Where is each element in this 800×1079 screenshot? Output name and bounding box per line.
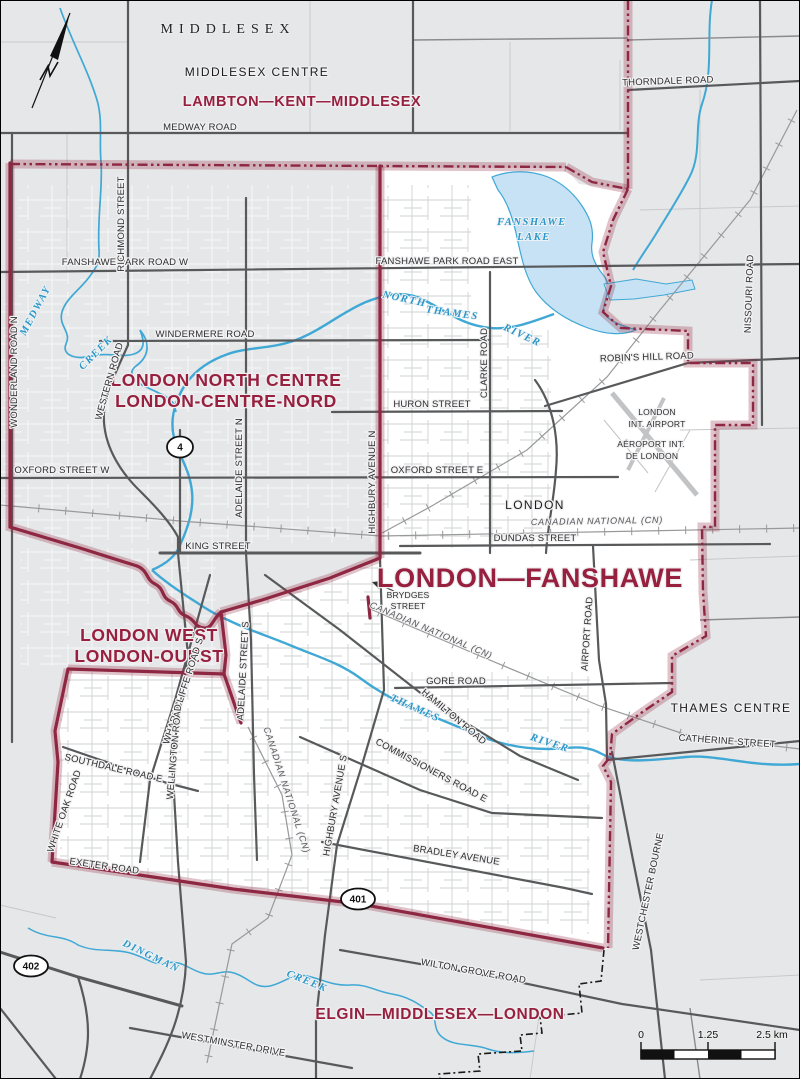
- svg-text:401: 401: [350, 895, 367, 906]
- label-oxford-street-w: OXFORD STREET W: [14, 465, 109, 476]
- scale-tick-0: 0: [638, 1029, 644, 1041]
- electoral-district-map: 01.252.5 km 4401402 MIDDLESEXMIDDLESEX C…: [0, 0, 800, 1079]
- label-clarke-road: CLARKE ROAD: [479, 328, 490, 398]
- label-dundas-street: DUNDAS STREET: [494, 533, 577, 544]
- label-int-airport: INT. AIRPORT: [628, 419, 685, 429]
- label-london: LONDON: [505, 498, 565, 512]
- road-windermere: [100, 340, 488, 341]
- label-windermere-road: WINDERMERE ROAD: [155, 329, 254, 340]
- highway-shield-402: 402: [14, 956, 48, 977]
- label-fanshawe: FANSHAWE: [496, 217, 567, 228]
- label-medway-road: MEDWAY ROAD: [163, 122, 237, 133]
- svg-text:4: 4: [177, 443, 183, 454]
- label-king-street: KING STREET: [185, 541, 251, 552]
- label-middlesex-centre: MIDDLESEX CENTRE: [185, 65, 329, 79]
- label-london: LONDON: [638, 407, 676, 417]
- label-lake: LAKE: [516, 232, 551, 243]
- label-elgin-middlesex-london: ELGIN—MIDDLESEX—LONDON: [315, 1006, 564, 1023]
- label-london-centre-nord: LONDON-CENTRE-NORD: [115, 391, 337, 411]
- label-fanshawe-park-road-east: FANSHAWE PARK ROAD EAST: [376, 256, 519, 267]
- label-highbury-avenue-n: HIGHBURY AVENUE N: [367, 430, 378, 533]
- label-de-london: DE LONDON: [626, 451, 678, 461]
- label-oxford-street-e: OXFORD STREET E: [391, 465, 484, 476]
- label-a-roport-int: AÉROPORT INT.: [617, 439, 684, 449]
- label-london-north-centre: LONDON NORTH CENTRE: [110, 370, 341, 390]
- scale-tick-1-25: 1.25: [698, 1029, 719, 1041]
- highway-shield-401: 401: [341, 889, 375, 910]
- road-huron: [332, 411, 562, 412]
- svg-text:402: 402: [23, 962, 40, 973]
- scale-tick-2-5-km: 2.5 km: [756, 1029, 788, 1041]
- label-richmond-street: RICHMOND STREET: [116, 176, 127, 271]
- label-middlesex: MIDDLESEX: [161, 22, 296, 37]
- highway-shield-4: 4: [167, 437, 193, 458]
- map-canvas: 01.252.5 km 4401402 MIDDLESEXMIDDLESEX C…: [0, 0, 800, 1079]
- label-huron-street: HURON STREET: [393, 399, 470, 410]
- label-lambton-kent-middlesex: LAMBTON—KENT—MIDDLESEX: [183, 94, 422, 110]
- label-london-fanshawe: LONDON—FANSHAWE: [377, 563, 683, 593]
- road-oxford: [0, 477, 618, 478]
- label-gore-road: GORE ROAD: [426, 676, 486, 687]
- label-thames-centre: THAMES CENTRE: [671, 701, 792, 715]
- label-brydges: BRYDGES: [387, 590, 430, 600]
- label-adelaide-street-n: ADELAIDE STREET N: [234, 418, 245, 518]
